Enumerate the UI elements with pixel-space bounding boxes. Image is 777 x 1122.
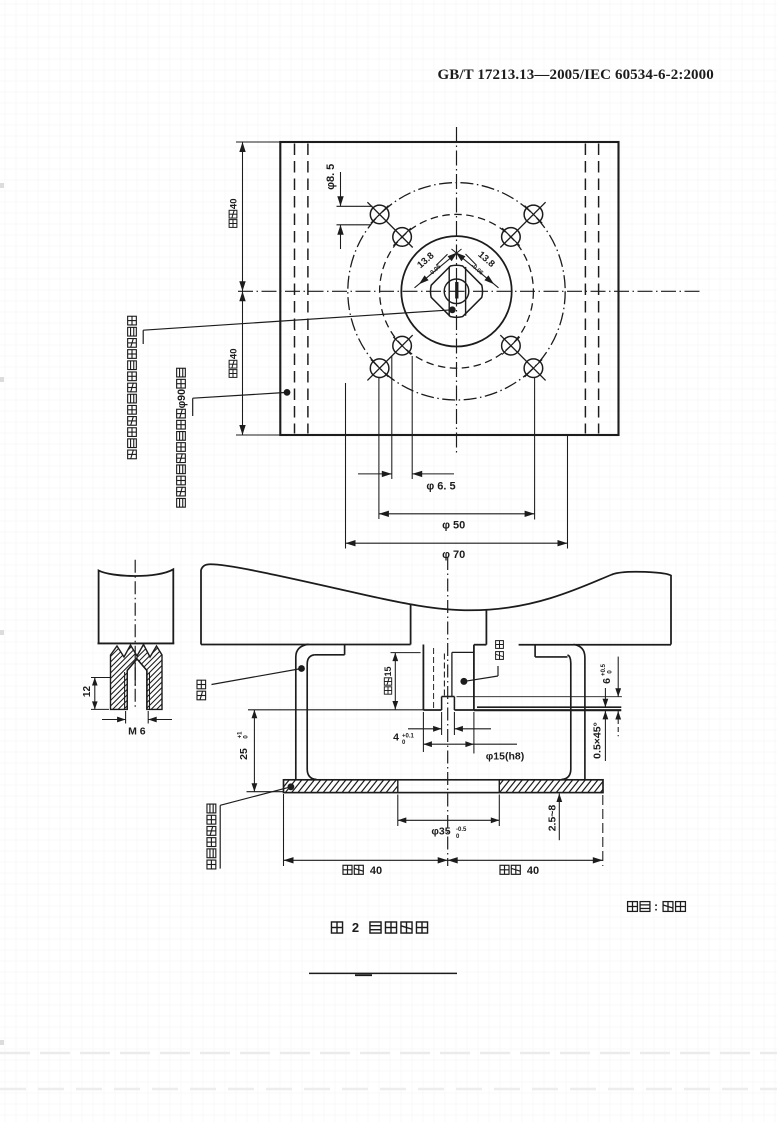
svg-text:φ 6. 5: φ 6. 5	[426, 481, 455, 493]
svg-text:φ8. 5: φ8. 5	[325, 164, 337, 190]
svg-text:6: 6	[601, 678, 613, 684]
svg-text:40: 40	[370, 865, 382, 877]
svg-text:GB/T 17213.13—2005/IEC 60534-6: GB/T 17213.13—2005/IEC 60534-6-2:2000	[438, 67, 714, 83]
svg-text:15: 15	[383, 666, 393, 676]
svg-text:M 6: M 6	[128, 726, 146, 738]
svg-text:+0.5: +0.5	[601, 663, 607, 676]
svg-text:25: 25	[238, 748, 250, 760]
svg-text:φ 50: φ 50	[442, 520, 465, 532]
svg-text:40: 40	[527, 865, 539, 877]
svg-text:40: 40	[228, 349, 239, 360]
svg-text:φ90: φ90	[176, 389, 188, 408]
svg-text:φ15(h8): φ15(h8)	[486, 751, 524, 763]
svg-text:12: 12	[82, 686, 93, 698]
svg-text:2: 2	[352, 920, 359, 935]
svg-text:4: 4	[393, 732, 399, 744]
svg-text:-0.5: -0.5	[456, 827, 467, 833]
svg-text:φ 70: φ 70	[442, 549, 465, 561]
svg-text:+0.1: +0.1	[402, 734, 415, 740]
svg-text:φ35: φ35	[431, 826, 450, 838]
svg-text:0.5×45°: 0.5×45°	[592, 722, 604, 759]
svg-text:40: 40	[228, 199, 239, 210]
svg-text::: :	[654, 902, 658, 914]
svg-text:2.5~8: 2.5~8	[546, 805, 558, 832]
